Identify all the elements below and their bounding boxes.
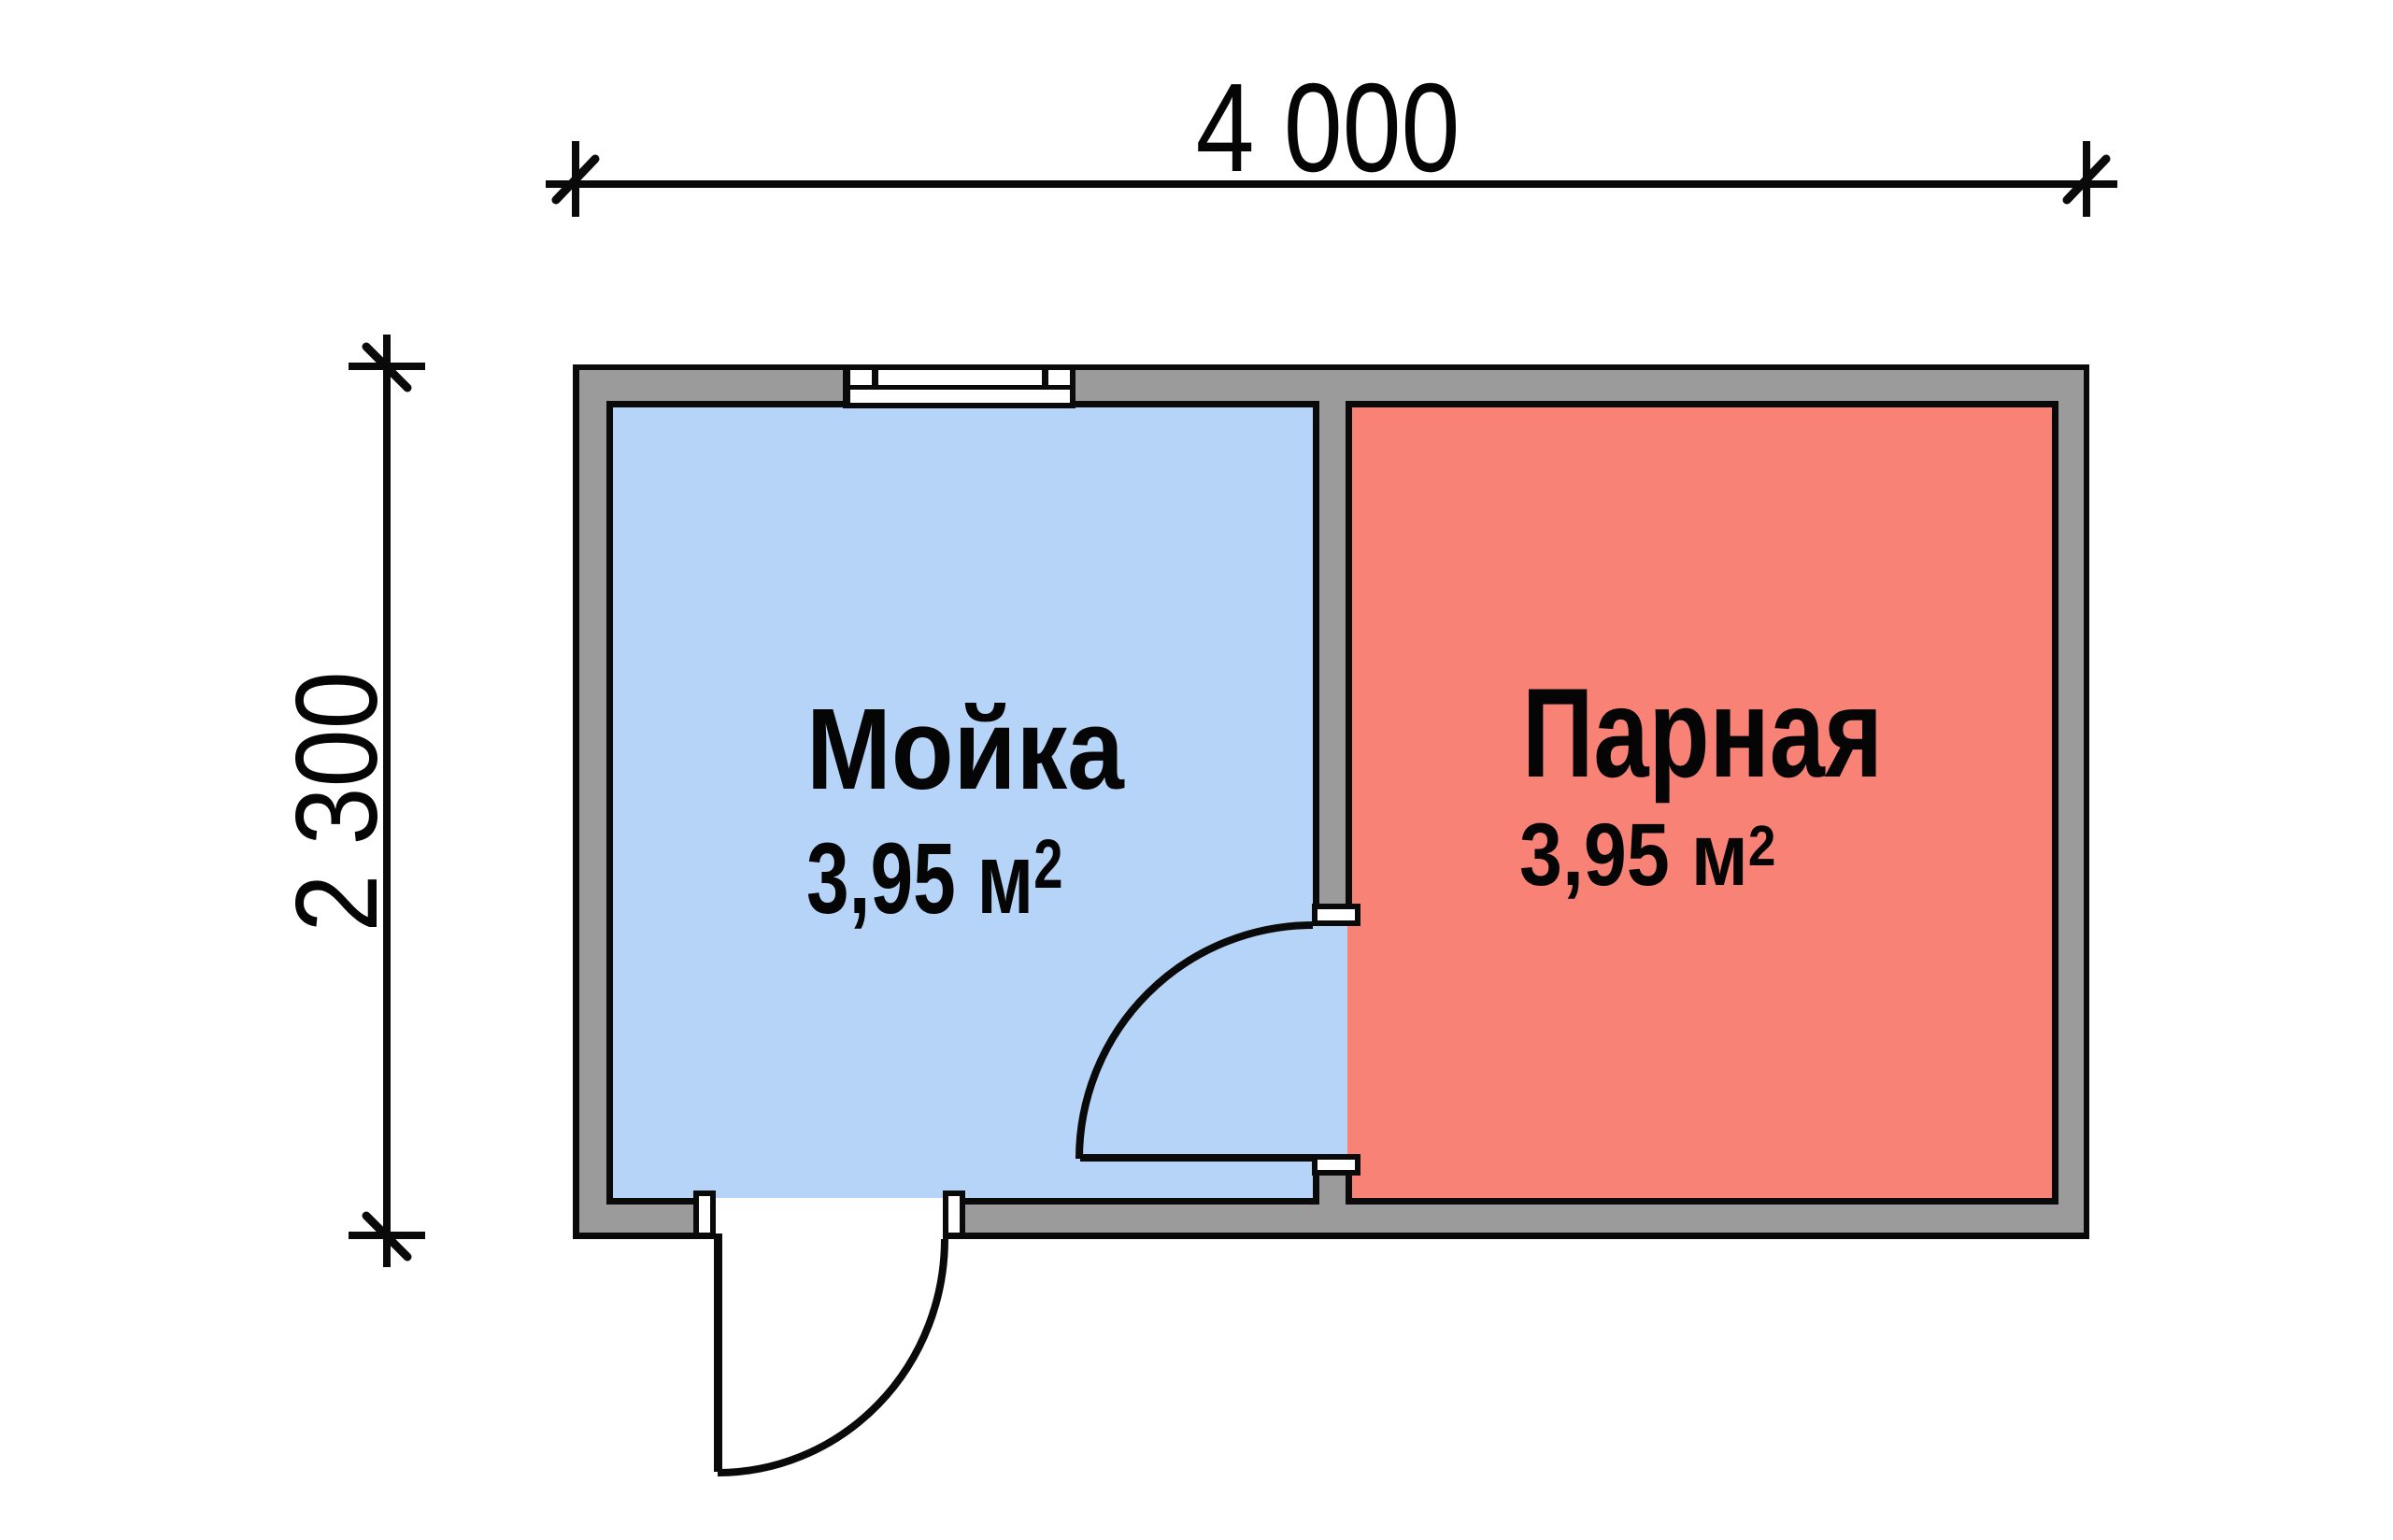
svg-text:3,95 м2: 3,95 м2 [806, 822, 1063, 934]
svg-text:3,95 м2: 3,95 м2 [1519, 805, 1775, 905]
svg-text:Парная: Парная [1522, 661, 1883, 804]
svg-text:2 300: 2 300 [272, 671, 402, 932]
svg-text:4 000: 4 000 [1196, 58, 1460, 199]
svg-text:Мойка: Мойка [806, 685, 1125, 814]
